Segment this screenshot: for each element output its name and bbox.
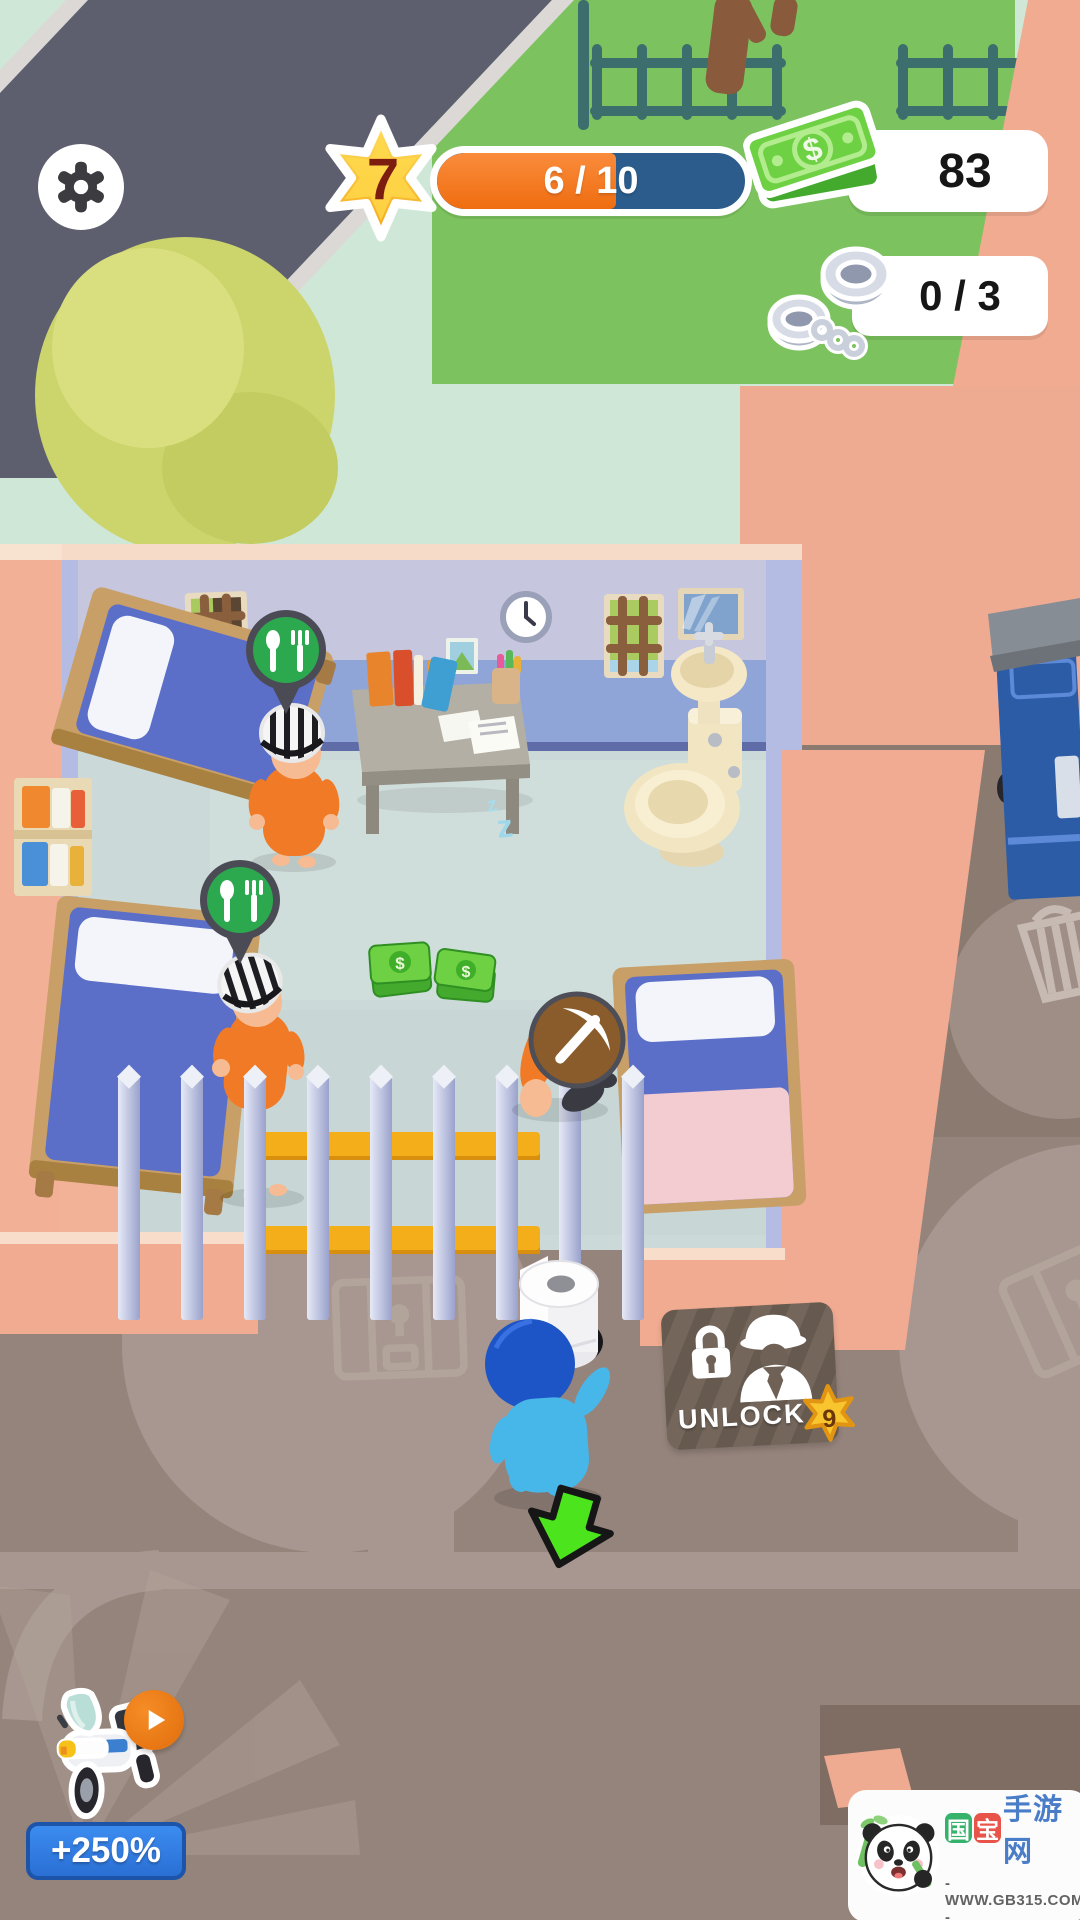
level-number: 7 (320, 146, 446, 213)
svg-text:$: $ (462, 964, 471, 981)
play-icon (137, 1703, 171, 1737)
watermark-brand: 国 宝 手游网 (945, 1786, 1080, 1870)
desk (352, 650, 533, 834)
handcuffs-icon (766, 234, 896, 370)
speed-booster-offer[interactable]: +250% (18, 1676, 228, 1886)
cell-window (604, 594, 664, 678)
money-pile: $ (434, 948, 496, 1002)
police-officer-lock-icon (675, 1311, 819, 1406)
watermark-url: - WWW.GB315.COM - (945, 1875, 1080, 1920)
bookshelf (14, 778, 92, 896)
game-screen: z z $ $ (0, 0, 1080, 1920)
money-pile: $ (369, 942, 432, 997)
brand-suffix: 手游网 (1003, 1786, 1080, 1870)
brand-char-badge: 国 (945, 1813, 972, 1843)
money-value: 83 (904, 144, 991, 199)
gear-icon (54, 160, 108, 214)
brand-char-badge: 宝 (974, 1813, 1001, 1843)
svg-text:$: $ (395, 954, 405, 973)
play-ad-button[interactable] (124, 1690, 184, 1750)
booster-bonus-label: +250% (51, 1831, 161, 1871)
capture-value: 0 / 3 (899, 272, 1001, 320)
lock-icon (691, 1328, 732, 1379)
panda-logo (856, 1804, 941, 1908)
watermark: 国 宝 手游网 - WWW.GB315.COM - (848, 1790, 1080, 1920)
level-progress-label: 6 / 10 (437, 153, 745, 209)
settings-button[interactable] (38, 144, 124, 230)
unlock-guard-sign[interactable]: UNLOCK 9 (660, 1302, 839, 1451)
wall-clock (503, 594, 549, 640)
level-progress-bar: 6 / 10 (430, 146, 752, 216)
booster-bonus-badge: +250% (26, 1822, 186, 1880)
unlock-required-level: 9 (800, 1403, 859, 1435)
